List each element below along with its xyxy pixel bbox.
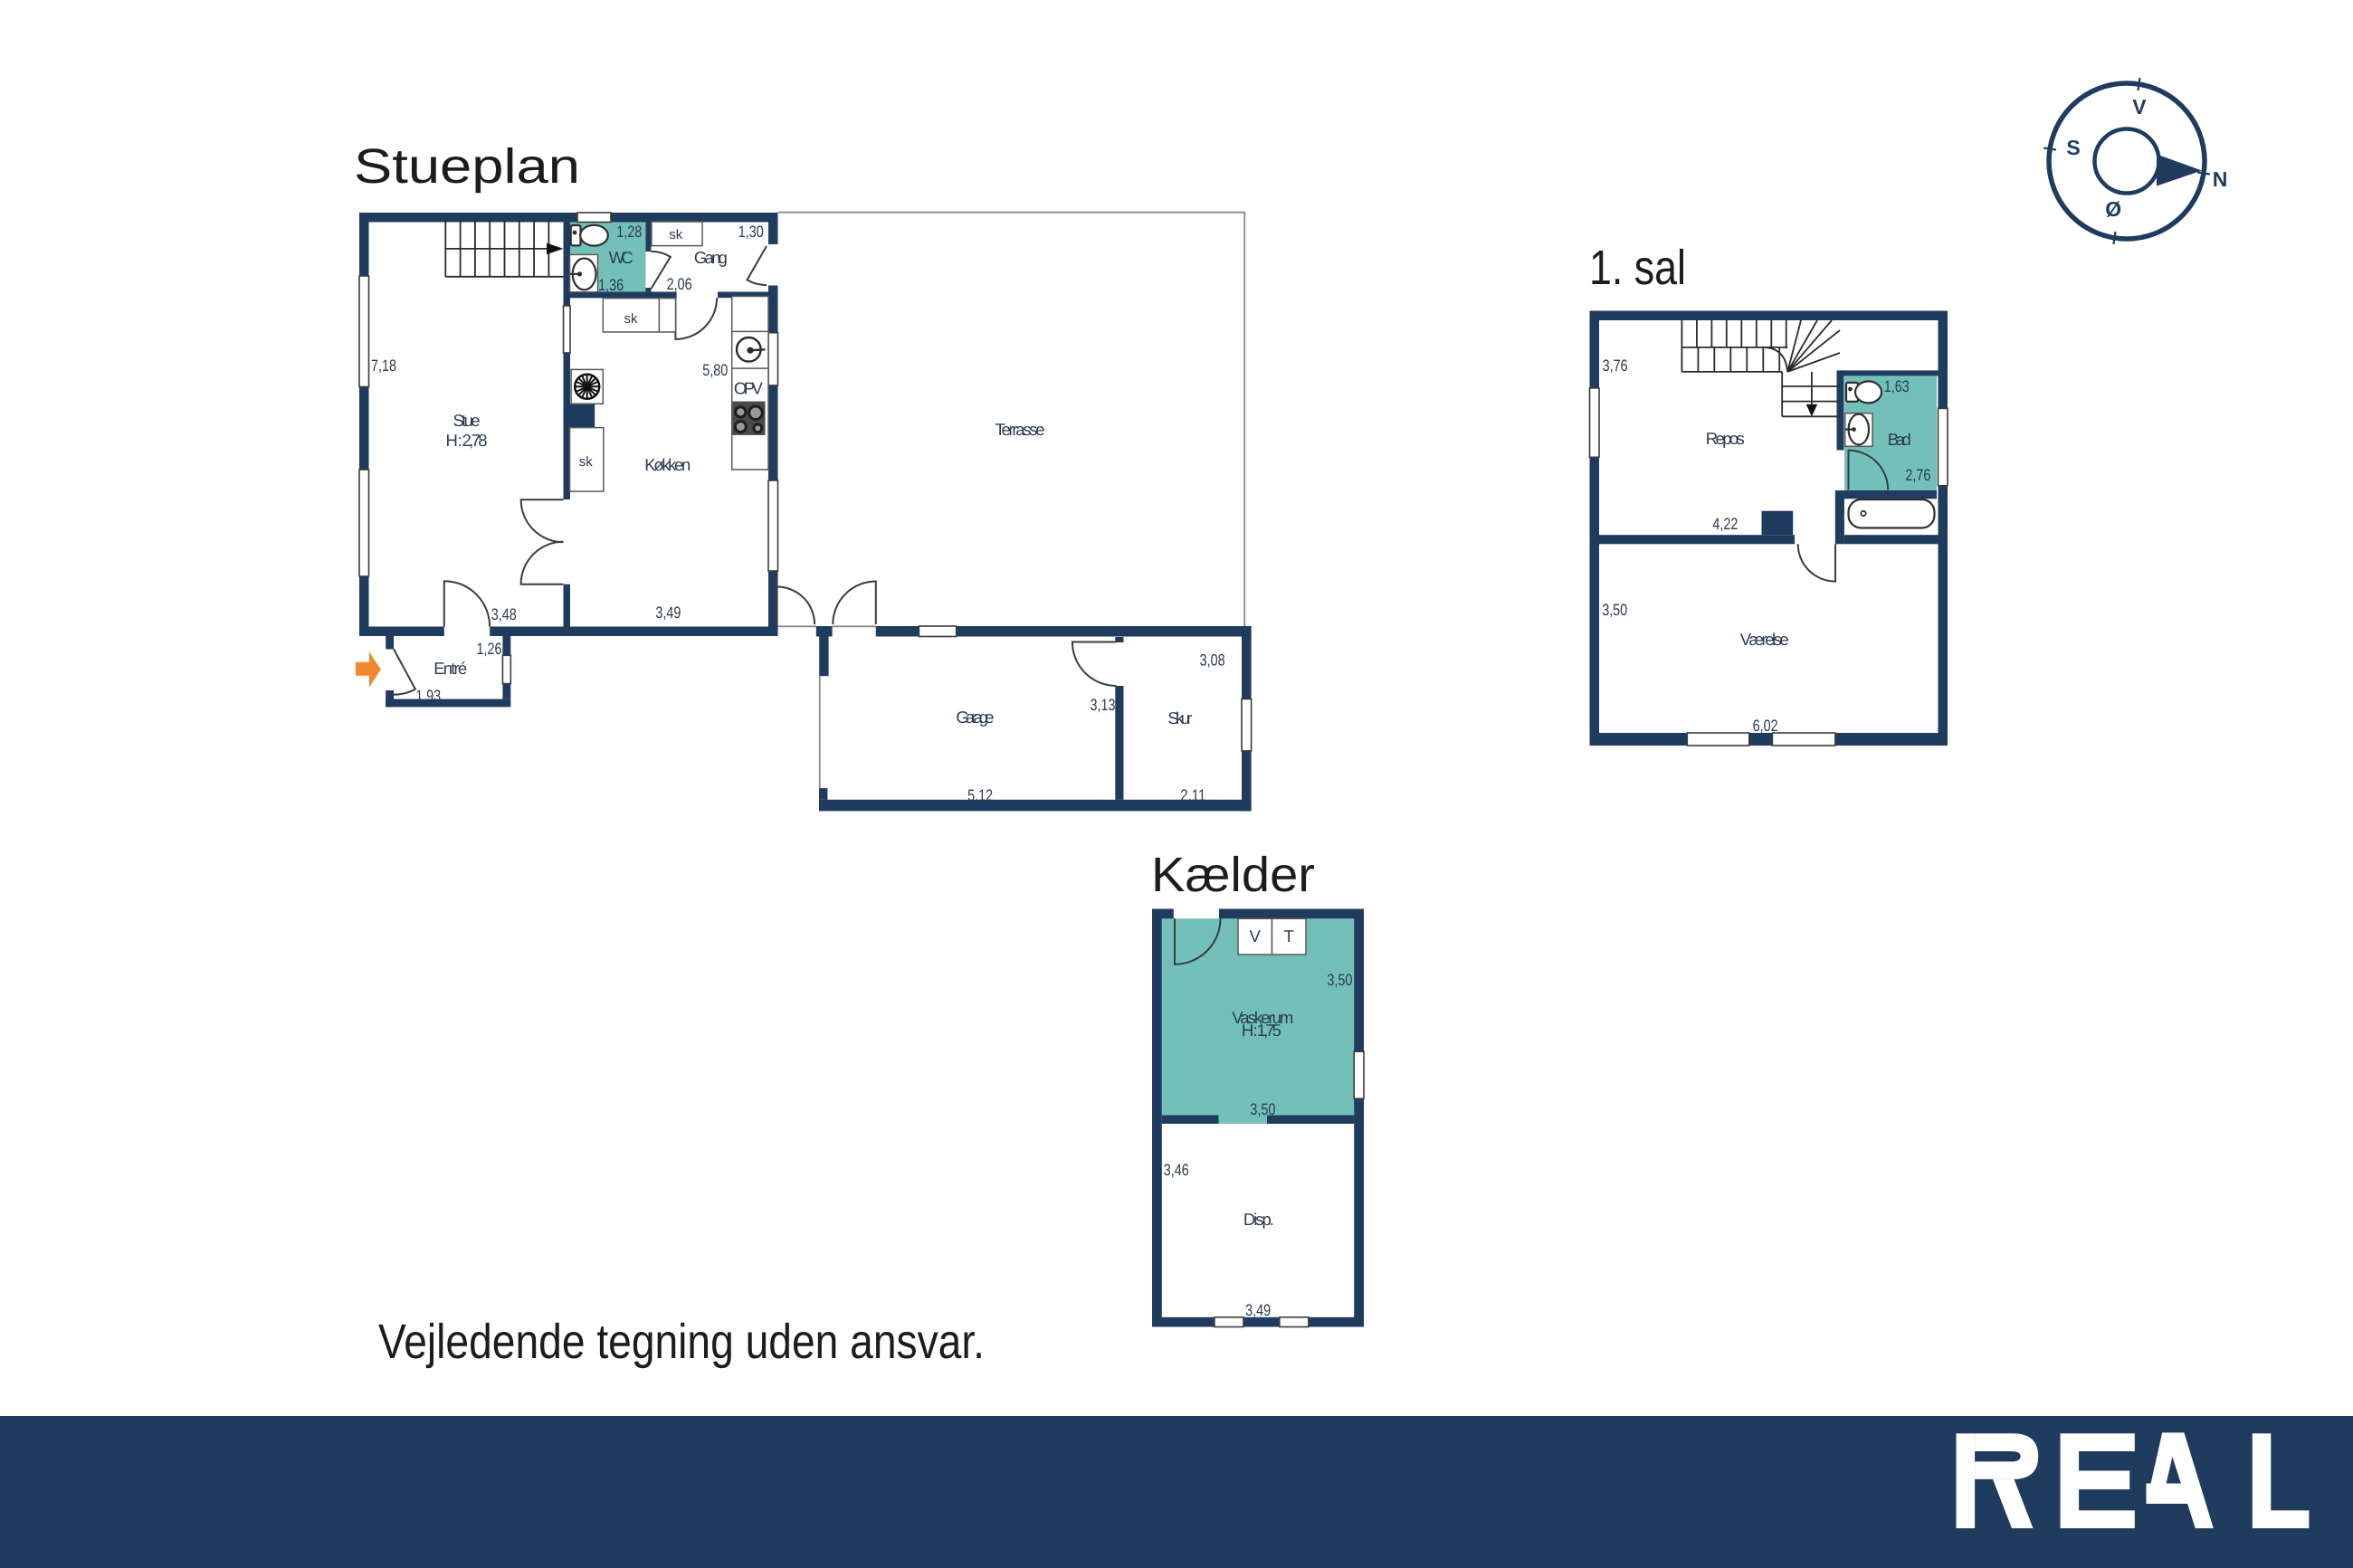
svg-text:H : 1,75: H : 1,75 — [1242, 1021, 1281, 1040]
svg-text:Garage: Garage — [956, 708, 994, 727]
svg-text:Entré: Entré — [433, 659, 467, 678]
svg-text:1,63: 1,63 — [1884, 377, 1910, 395]
svg-text:1,28: 1,28 — [616, 223, 642, 241]
svg-text:3,50: 3,50 — [1602, 601, 1627, 619]
svg-text:2,06: 2,06 — [667, 275, 692, 293]
svg-text:Disp.: Disp. — [1243, 1210, 1274, 1229]
svg-text:V: V — [1250, 927, 1262, 946]
svg-text:Ø: Ø — [2105, 197, 2121, 221]
svg-text:3,48: 3,48 — [491, 605, 517, 623]
svg-text:3,50: 3,50 — [1250, 1100, 1275, 1118]
svg-text:3,49: 3,49 — [655, 603, 681, 622]
svg-text:WC: WC — [609, 248, 633, 267]
svg-text:3,50: 3,50 — [1327, 971, 1352, 989]
svg-text:Terrasse: Terrasse — [995, 420, 1045, 439]
svg-text:Skur: Skur — [1167, 708, 1192, 727]
svg-text:Gang: Gang — [694, 248, 728, 267]
svg-text:Køkken: Køkken — [644, 455, 691, 474]
svg-text:2,11: 2,11 — [1180, 786, 1205, 804]
svg-text:V: V — [2132, 95, 2147, 119]
svg-text:7,18: 7,18 — [371, 356, 396, 375]
svg-text:sk: sk — [579, 454, 594, 470]
svg-text:Værelse: Værelse — [1740, 630, 1789, 649]
svg-text:H : 2,78: H : 2,78 — [446, 431, 488, 450]
svg-text:5,12: 5,12 — [967, 786, 993, 804]
svg-text:3,13: 3,13 — [1091, 696, 1116, 714]
svg-text:T: T — [1284, 927, 1294, 946]
svg-text:1. sal: 1. sal — [1589, 241, 1686, 295]
svg-text:5,80: 5,80 — [702, 361, 728, 379]
svg-text:3,49: 3,49 — [1245, 1301, 1271, 1319]
svg-text:Kælder: Kælder — [1151, 848, 1315, 902]
svg-text:Stueplan: Stueplan — [354, 139, 580, 194]
svg-text:Repos: Repos — [1706, 429, 1745, 448]
svg-text:4,22: 4,22 — [1712, 515, 1738, 533]
svg-text:Vejledende tegning uden ansvar: Vejledende tegning uden ansvar. — [378, 1315, 985, 1369]
svg-text:6,02: 6,02 — [1753, 717, 1778, 735]
svg-text:sk: sk — [624, 311, 639, 327]
svg-text:2,76: 2,76 — [1905, 466, 1930, 484]
svg-text:1,26: 1,26 — [477, 640, 502, 658]
svg-text:sk: sk — [669, 227, 683, 242]
svg-text:Bad: Bad — [1888, 430, 1911, 449]
svg-text:Stue: Stue — [453, 411, 481, 430]
svg-text:3,08: 3,08 — [1200, 651, 1225, 670]
svg-text:1,93: 1,93 — [415, 687, 441, 705]
svg-text:3,76: 3,76 — [1603, 356, 1628, 375]
svg-text:N: N — [2213, 167, 2228, 191]
svg-text:3,46: 3,46 — [1164, 1161, 1189, 1179]
svg-text:OPV: OPV — [734, 379, 764, 398]
svg-text:1,30: 1,30 — [738, 223, 764, 241]
svg-text:1,36: 1,36 — [598, 276, 624, 294]
svg-text:S: S — [2066, 136, 2080, 159]
